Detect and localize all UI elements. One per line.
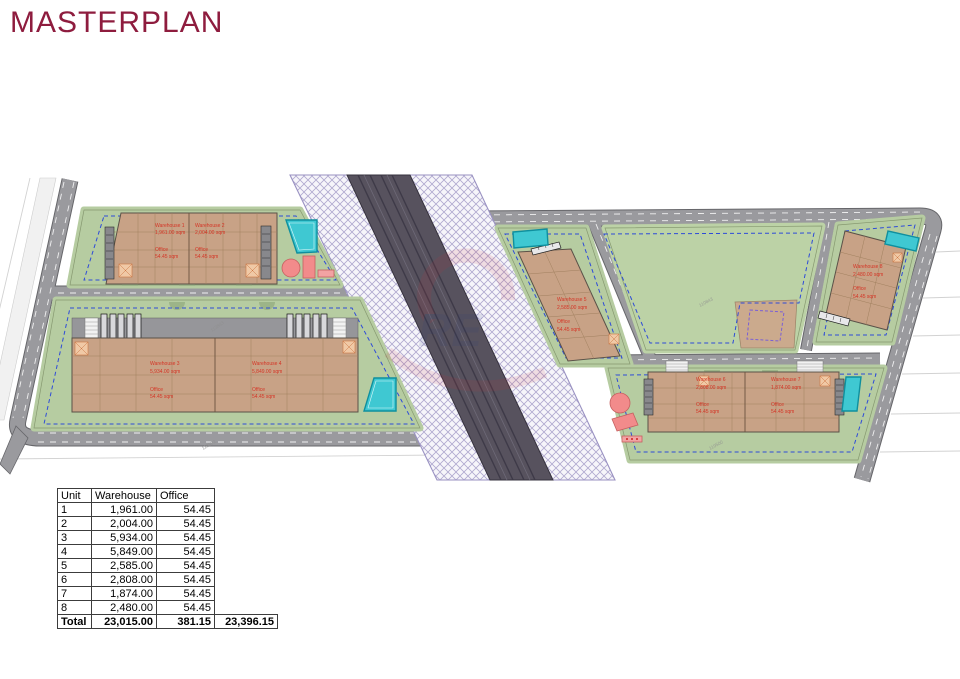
svg-text:Warehouse 3: Warehouse 3: [150, 361, 180, 367]
table-row: 5 2,585.00 54.45: [58, 559, 278, 573]
svg-text:54.45 sqm: 54.45 sqm: [155, 254, 178, 260]
header-office: Office: [157, 489, 215, 503]
svg-text:2,480.00 sqm: 2,480.00 sqm: [853, 272, 883, 278]
svg-text:Office: Office: [150, 387, 163, 393]
svg-text:Office: Office: [252, 387, 265, 393]
svg-text:Office: Office: [696, 402, 709, 408]
total-office: 381.15: [157, 615, 215, 629]
svg-text:54.45 sqm: 54.45 sqm: [853, 294, 876, 300]
svg-text:54.45 sqm: 54.45 sqm: [150, 394, 173, 400]
tank-icon: [282, 259, 300, 277]
svg-text:54.45 sqm: 54.45 sqm: [696, 409, 719, 415]
svg-text:Warehouse 8: Warehouse 8: [853, 264, 883, 270]
pond-icon: [513, 229, 548, 248]
table-row: 7 1,874.00 54.45: [58, 587, 278, 601]
svg-text:2,808.00 sqm: 2,808.00 sqm: [696, 385, 726, 391]
svg-text:Office: Office: [557, 319, 570, 325]
tank-icon: [610, 393, 630, 413]
subplot-tan: [735, 300, 797, 348]
svg-text:Office: Office: [771, 402, 784, 408]
building-warehouse-6-7: [644, 361, 844, 432]
svg-text:54.45 sqm: 54.45 sqm: [252, 394, 275, 400]
grand-total: 23,396.15: [215, 615, 278, 629]
svg-text:1,961.00 sqm: 1,961.00 sqm: [155, 230, 185, 236]
table-row: 2 2,004.00 54.45: [58, 517, 278, 531]
svg-text:Office: Office: [195, 247, 208, 253]
area-schedule-table: Unit Warehouse Office 1 1,961.00 54.45 2…: [57, 488, 278, 629]
total-label: Total: [58, 615, 92, 629]
svg-text:Warehouse 5: Warehouse 5: [557, 297, 587, 303]
svg-text:54.45 sqm: 54.45 sqm: [771, 409, 794, 415]
svg-text:Office: Office: [853, 286, 866, 292]
svg-text:5,934.00 sqm: 5,934.00 sqm: [150, 369, 180, 375]
svg-text:Warehouse 6: Warehouse 6: [696, 377, 726, 383]
table-total-row: Total 23,015.00 381.15 23,396.15: [58, 615, 278, 629]
svg-text:Warehouse 1: Warehouse 1: [155, 223, 185, 229]
svg-text:54.45 sqm: 54.45 sqm: [195, 254, 218, 260]
svg-text:54.45 sqm: 54.45 sqm: [557, 327, 580, 333]
svg-text:Warehouse 2: Warehouse 2: [195, 223, 225, 229]
table-row: 6 2,808.00 54.45: [58, 573, 278, 587]
header-warehouse: Warehouse: [92, 489, 157, 503]
svg-text:Office: Office: [155, 247, 168, 253]
table-row: 8 2,480.00 54.45: [58, 601, 278, 615]
svg-text:5,849.00 sqm: 5,849.00 sqm: [252, 369, 282, 375]
tank-icon: [303, 256, 315, 278]
header-unit: Unit: [58, 489, 92, 503]
pond-icon: [842, 377, 861, 411]
svg-text:Warehouse 7: Warehouse 7: [771, 377, 801, 383]
table-row: 4 5,849.00 54.45: [58, 545, 278, 559]
table-header-row: Unit Warehouse Office: [58, 489, 278, 503]
masterplan-page: MASTERPLAN: [0, 0, 960, 679]
svg-text:1,874.00 sqm: 1,874.00 sqm: [771, 385, 801, 391]
svg-text:2,004.00 sqm: 2,004.00 sqm: [195, 230, 225, 236]
watermark-text: RE: [418, 304, 483, 356]
svg-text:2,585.00 sqm: 2,585.00 sqm: [557, 305, 587, 311]
svg-text:Warehouse 4: Warehouse 4: [252, 361, 282, 367]
table-row: 1 1,961.00 54.45: [58, 503, 278, 517]
table-row: 3 5,934.00 54.45: [58, 531, 278, 545]
building-warehouse-1-2: [105, 213, 277, 284]
total-warehouse: 23,015.00: [92, 615, 157, 629]
